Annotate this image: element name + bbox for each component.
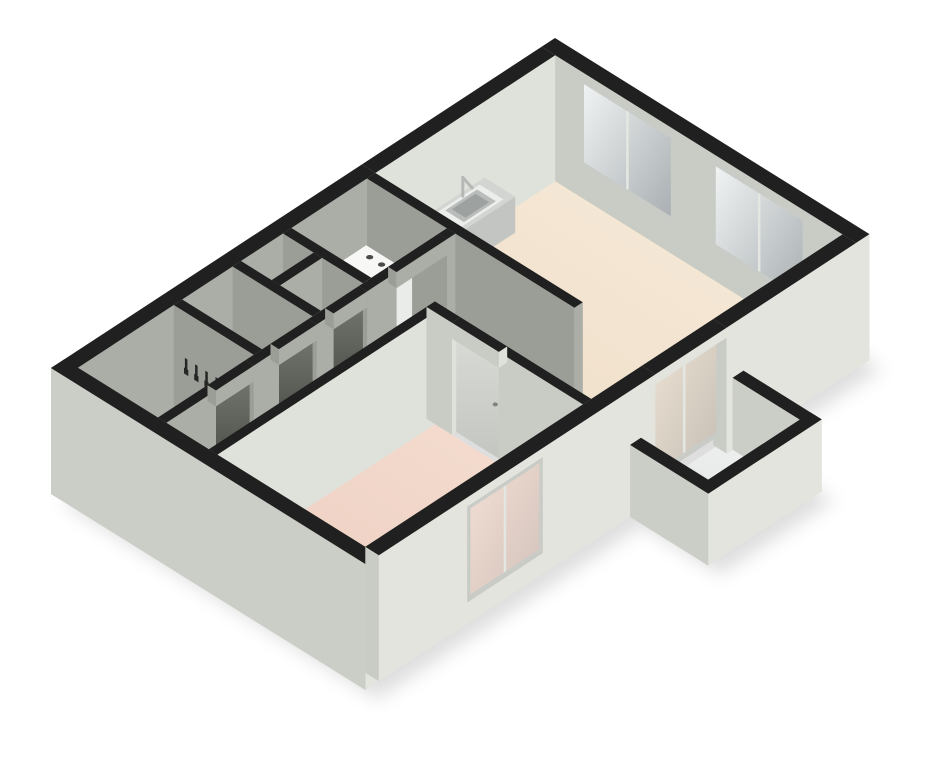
appliance-knob (378, 262, 385, 266)
floorplan-3d-render (0, 0, 925, 768)
floorplan-3d-stage (0, 0, 925, 768)
door-handle (493, 402, 498, 406)
appliance-knob (366, 255, 373, 259)
